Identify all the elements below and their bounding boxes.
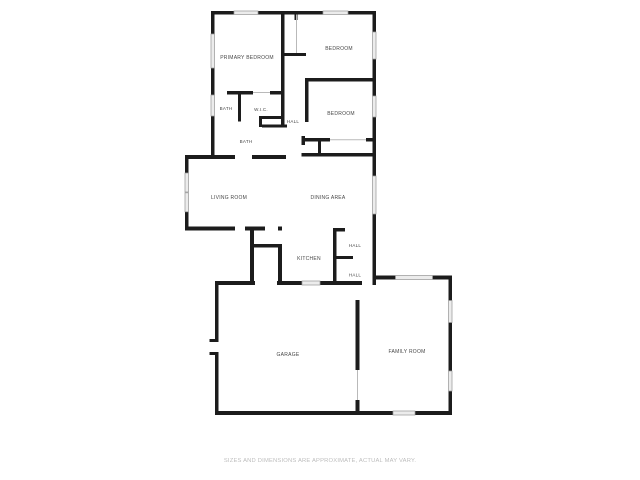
room-label-family-room: FAMILY ROOM bbox=[388, 349, 425, 355]
room-label-bath-1: BATH bbox=[220, 106, 233, 111]
room-label-kitchen: KITCHEN bbox=[297, 256, 321, 262]
window-marker bbox=[234, 11, 258, 15]
window-marker bbox=[449, 371, 453, 391]
room-label-bedroom-1: BEDROOM bbox=[325, 46, 353, 52]
door-lines-layer bbox=[253, 15, 366, 401]
window-marker bbox=[185, 173, 189, 192]
room-label-wic: W.I.C. bbox=[254, 107, 268, 112]
window-marker bbox=[373, 32, 377, 59]
window-marker bbox=[396, 276, 433, 280]
room-label-bath-2: BATH bbox=[240, 139, 253, 144]
room-label-dining-area: DINING AREA bbox=[311, 195, 346, 201]
window-marker bbox=[393, 411, 415, 415]
room-label-bedroom-2: BEDROOM bbox=[327, 111, 355, 117]
window-marker bbox=[373, 96, 377, 117]
window-marker bbox=[323, 11, 348, 15]
room-label-garage: GARAGE bbox=[277, 352, 300, 358]
room-label-primary-bedroom: PRIMARY BEDROOM bbox=[220, 55, 274, 61]
window-marker bbox=[185, 193, 189, 212]
disclaimer-text: SIZES AND DIMENSIONS ARE APPROXIMATE, AC… bbox=[224, 458, 416, 464]
room-label-hall-lower: HALL bbox=[349, 273, 362, 278]
room-label-hall-mid: HALL bbox=[349, 243, 362, 248]
room-label-living-room: LIVING ROOM bbox=[211, 195, 247, 201]
room-label-hall-upper: HALL bbox=[287, 119, 300, 124]
window-marker bbox=[302, 281, 320, 285]
window-marker bbox=[373, 176, 377, 214]
window-marker bbox=[449, 301, 453, 323]
window-marker bbox=[211, 34, 215, 68]
floor-plan-page: PRIMARY BEDROOM BEDROOM BEDROOM BATH W.I… bbox=[0, 0, 640, 480]
window-marker bbox=[211, 95, 215, 116]
floor-plan-svg: PRIMARY BEDROOM BEDROOM BEDROOM BATH W.I… bbox=[0, 0, 640, 480]
